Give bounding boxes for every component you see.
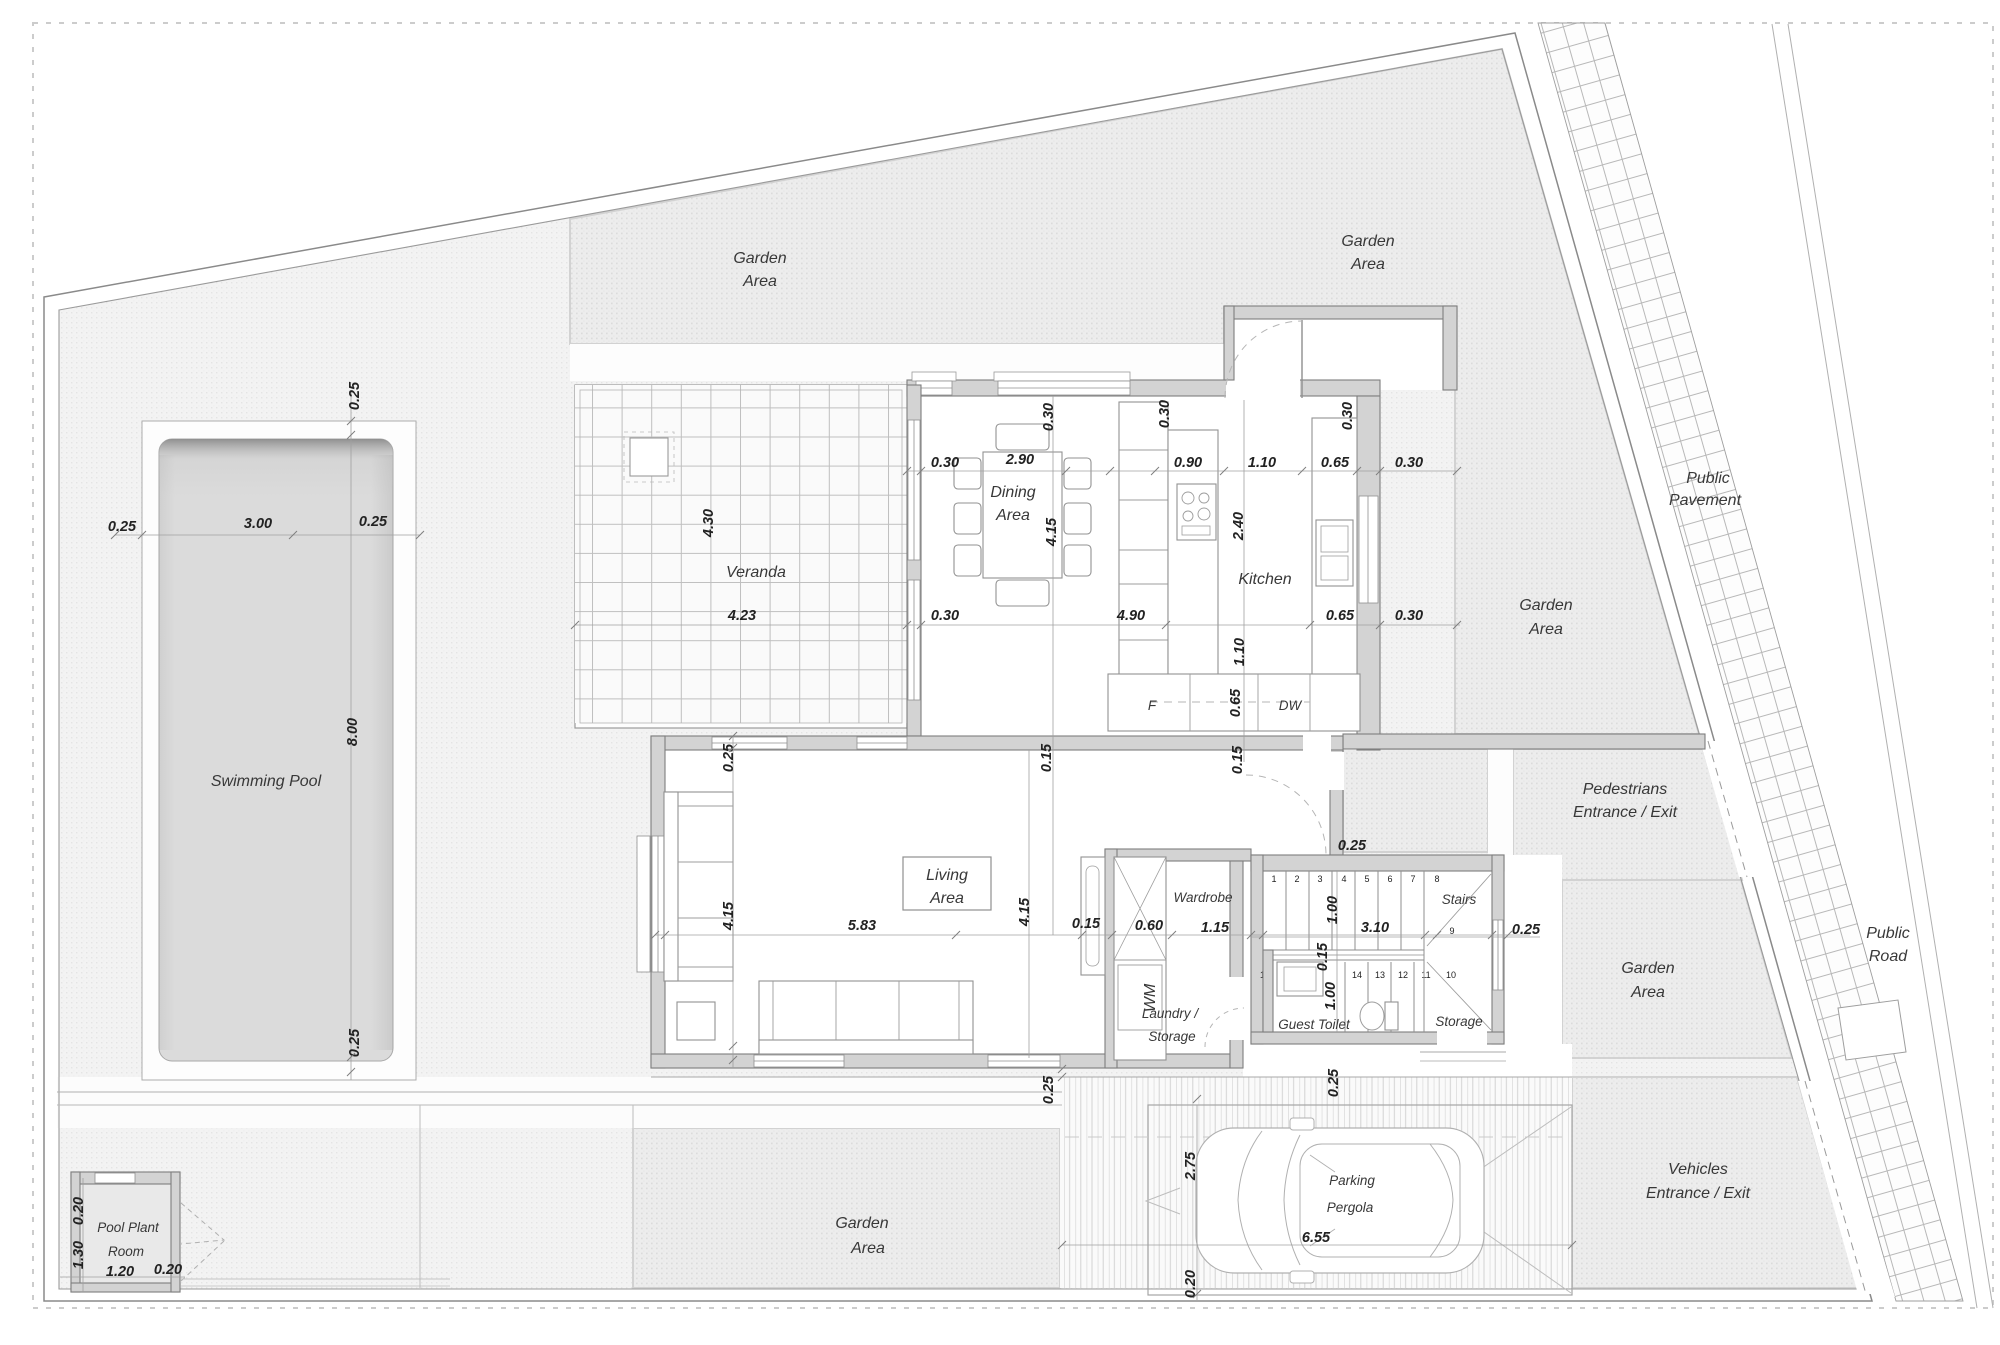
svg-text:0.60: 0.60 [1135, 918, 1163, 934]
svg-text:Living: Living [926, 867, 968, 884]
svg-text:0.25: 0.25 [359, 514, 388, 530]
svg-text:1.00: 1.00 [1325, 896, 1341, 924]
svg-text:0.90: 0.90 [1174, 455, 1202, 471]
svg-text:Area: Area [1528, 621, 1563, 638]
svg-text:Storage: Storage [1435, 1014, 1482, 1029]
svg-text:Vehicles: Vehicles [1668, 1161, 1728, 1178]
svg-text:Storage: Storage [1148, 1029, 1195, 1044]
svg-text:Area: Area [1350, 256, 1385, 273]
svg-text:WM: WM [1142, 983, 1159, 1012]
svg-text:0.25: 0.25 [347, 381, 363, 410]
svg-text:Area: Area [1630, 984, 1665, 1001]
svg-text:2.40: 2.40 [1231, 512, 1247, 541]
svg-text:2.90: 2.90 [1005, 452, 1034, 468]
svg-text:Road: Road [1869, 948, 1908, 965]
svg-text:3: 3 [1317, 874, 1322, 884]
svg-text:Kitchen: Kitchen [1238, 571, 1291, 588]
svg-text:0.30: 0.30 [931, 455, 959, 471]
svg-text:13: 13 [1375, 970, 1385, 980]
svg-text:Area: Area [742, 273, 777, 290]
svg-text:0.30: 0.30 [1041, 403, 1057, 431]
svg-text:Dining: Dining [990, 484, 1035, 501]
svg-text:0.30: 0.30 [1340, 402, 1356, 430]
svg-text:Guest Toilet: Guest Toilet [1278, 1017, 1351, 1032]
svg-text:5.83: 5.83 [848, 918, 876, 934]
svg-text:0.30: 0.30 [1157, 400, 1173, 428]
svg-text:DW: DW [1279, 698, 1303, 713]
svg-text:1.00: 1.00 [1323, 982, 1339, 1010]
svg-text:Area: Area [929, 890, 964, 907]
svg-text:4.90: 4.90 [1116, 608, 1145, 624]
svg-text:0.30: 0.30 [1395, 455, 1423, 471]
svg-text:0.25: 0.25 [1041, 1075, 1057, 1104]
svg-text:Swimming Pool: Swimming Pool [211, 773, 322, 790]
svg-text:6.55: 6.55 [1302, 1230, 1331, 1246]
svg-text:0.15: 0.15 [1230, 745, 1246, 774]
svg-text:Pedestrians: Pedestrians [1583, 781, 1668, 798]
svg-text:Room: Room [108, 1244, 144, 1259]
svg-text:Stairs: Stairs [1442, 892, 1477, 907]
svg-text:4.30: 4.30 [701, 509, 717, 538]
svg-text:0.25: 0.25 [347, 1028, 363, 1057]
svg-text:0.25: 0.25 [1512, 922, 1541, 938]
svg-text:1.30: 1.30 [71, 1241, 87, 1269]
svg-text:Public: Public [1866, 925, 1910, 942]
svg-text:Garden: Garden [1621, 960, 1674, 977]
svg-text:4.15: 4.15 [1044, 517, 1060, 547]
svg-text:Garden: Garden [733, 250, 786, 267]
svg-text:0.25: 0.25 [721, 743, 737, 772]
svg-text:5: 5 [1364, 874, 1369, 884]
svg-text:10: 10 [1446, 970, 1456, 980]
svg-text:0.65: 0.65 [1228, 688, 1244, 717]
svg-text:4.23: 4.23 [727, 608, 756, 624]
svg-text:0.25: 0.25 [1326, 1068, 1342, 1097]
svg-text:7: 7 [1410, 874, 1415, 884]
svg-text:0.65: 0.65 [1321, 455, 1350, 471]
svg-text:0.20: 0.20 [71, 1197, 87, 1225]
svg-text:4.15: 4.15 [721, 901, 737, 931]
svg-text:2: 2 [1294, 874, 1299, 884]
svg-text:0.30: 0.30 [1395, 608, 1423, 624]
svg-text:1.10: 1.10 [1248, 455, 1276, 471]
svg-text:1.15: 1.15 [1201, 920, 1230, 936]
svg-text:4: 4 [1341, 874, 1346, 884]
svg-text:Garden: Garden [835, 1215, 888, 1232]
svg-text:0.25: 0.25 [1338, 838, 1367, 854]
svg-text:Entrance / Exit: Entrance / Exit [1573, 804, 1678, 821]
svg-text:Public: Public [1686, 470, 1730, 487]
svg-text:0.65: 0.65 [1326, 608, 1355, 624]
svg-text:0.25: 0.25 [108, 519, 137, 535]
svg-text:1.20: 1.20 [106, 1264, 134, 1280]
svg-text:14: 14 [1352, 970, 1362, 980]
svg-text:Parking: Parking [1329, 1173, 1375, 1188]
svg-text:Entrance / Exit: Entrance / Exit [1646, 1185, 1751, 1202]
svg-text:Garden: Garden [1519, 597, 1572, 614]
svg-text:0.15: 0.15 [1039, 743, 1055, 772]
svg-text:1.10: 1.10 [1232, 638, 1248, 666]
svg-text:Area: Area [995, 507, 1030, 524]
svg-text:F: F [1148, 698, 1157, 713]
svg-text:8.00: 8.00 [345, 718, 361, 746]
svg-text:Pavement: Pavement [1669, 492, 1742, 509]
svg-text:11: 11 [1421, 970, 1430, 980]
svg-text:8: 8 [1434, 874, 1439, 884]
svg-text:0.15: 0.15 [1315, 942, 1331, 971]
svg-text:Veranda: Veranda [726, 564, 786, 581]
svg-text:0.15: 0.15 [1072, 916, 1101, 932]
svg-text:0.30: 0.30 [931, 608, 959, 624]
svg-text:3.00: 3.00 [244, 516, 272, 532]
svg-text:2.75: 2.75 [1183, 1151, 1199, 1181]
svg-text:Garden: Garden [1341, 233, 1394, 250]
svg-text:3.10: 3.10 [1361, 920, 1389, 936]
svg-text:0.20: 0.20 [154, 1262, 182, 1278]
svg-text:Pool Plant: Pool Plant [97, 1220, 160, 1235]
svg-text:6: 6 [1387, 874, 1392, 884]
svg-text:4.15: 4.15 [1017, 897, 1033, 927]
svg-text:Wardrobe: Wardrobe [1173, 890, 1232, 905]
svg-text:Area: Area [850, 1240, 885, 1257]
svg-text:12: 12 [1398, 970, 1408, 980]
svg-text:Pergola: Pergola [1327, 1200, 1374, 1215]
svg-text:1: 1 [1271, 874, 1276, 884]
svg-text:9: 9 [1449, 926, 1454, 936]
